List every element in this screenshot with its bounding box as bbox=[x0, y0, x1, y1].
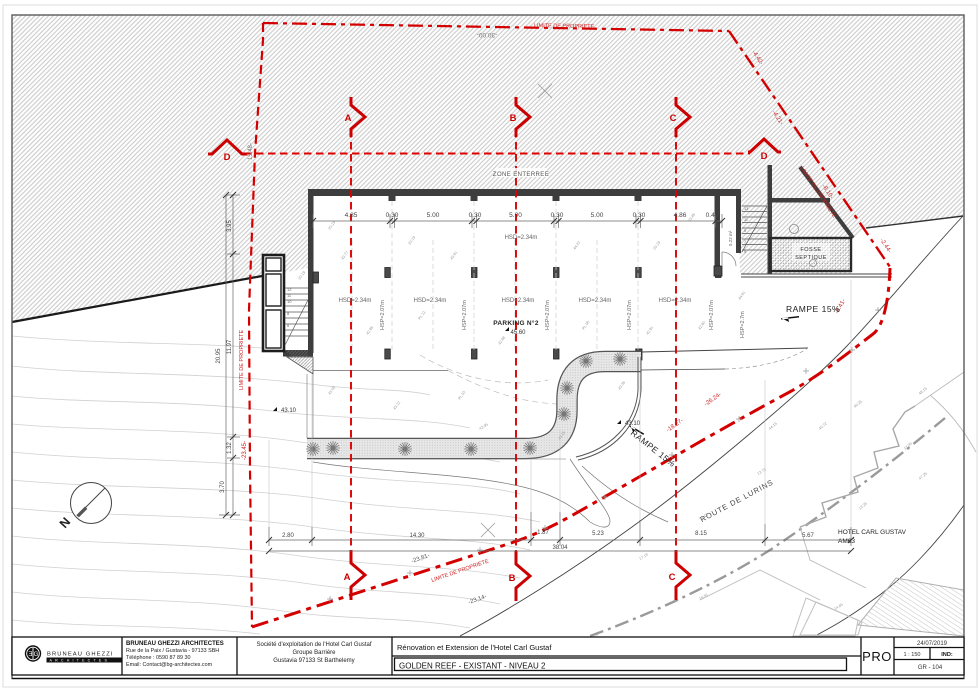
svg-text:HSD=2.34m: HSD=2.34m bbox=[659, 298, 692, 304]
svg-text:5.00: 5.00 bbox=[427, 212, 440, 219]
svg-text:5.00: 5.00 bbox=[591, 212, 604, 219]
svg-text:10: 10 bbox=[287, 299, 292, 304]
svg-text:3.95: 3.95 bbox=[227, 220, 233, 232]
svg-text:D: D bbox=[761, 151, 768, 162]
svg-text:8.15: 8.15 bbox=[695, 531, 707, 537]
svg-text:9: 9 bbox=[744, 229, 746, 233]
svg-text:1.87: 1.87 bbox=[537, 530, 549, 536]
svg-text:Groupe Barrière: Groupe Barrière bbox=[292, 650, 336, 656]
svg-text:PARKING N°2: PARKING N°2 bbox=[493, 319, 539, 327]
svg-text:15.48-: 15.48- bbox=[248, 143, 254, 160]
svg-text:45.60: 45.60 bbox=[510, 330, 526, 336]
svg-text:BRUNEAU GHEZZI: BRUNEAU GHEZZI bbox=[47, 652, 114, 658]
svg-text:RAMPE 15%: RAMPE 15% bbox=[786, 304, 840, 314]
svg-text:5: 5 bbox=[744, 250, 746, 254]
svg-text:B: B bbox=[509, 573, 516, 584]
svg-text:G: G bbox=[34, 652, 39, 658]
svg-text:HSP=2.07m: HSP=2.07m bbox=[709, 300, 715, 330]
svg-text:14.30: 14.30 bbox=[409, 533, 425, 539]
svg-text:AM63: AM63 bbox=[838, 538, 855, 545]
svg-text:43.10: 43.10 bbox=[625, 421, 641, 427]
svg-text:4.86: 4.86 bbox=[674, 212, 687, 219]
svg-text:E: E bbox=[28, 652, 32, 658]
svg-text:A: A bbox=[344, 572, 351, 583]
svg-text:11: 11 bbox=[744, 218, 748, 222]
svg-text:LIMITE DE PROPRIETE: LIMITE DE PROPRIETE bbox=[239, 329, 245, 390]
svg-text:5.23: 5.23 bbox=[592, 531, 604, 537]
svg-text:B: B bbox=[510, 113, 517, 124]
svg-text:D: D bbox=[224, 152, 231, 163]
svg-text:4.85: 4.85 bbox=[345, 212, 358, 219]
svg-text:PRO: PRO bbox=[862, 649, 892, 664]
svg-text:11.97: 11.97 bbox=[227, 339, 233, 354]
svg-text:1 : 150: 1 : 150 bbox=[903, 652, 920, 658]
svg-text:0.30: 0.30 bbox=[551, 212, 564, 219]
svg-text:HOTEL CARL GUSTAV: HOTEL CARL GUSTAV bbox=[838, 529, 907, 536]
svg-text:0.40: 0.40 bbox=[706, 212, 719, 219]
svg-text:2.80: 2.80 bbox=[282, 533, 294, 539]
svg-text:13: 13 bbox=[744, 207, 748, 211]
svg-text:C: C bbox=[669, 572, 676, 583]
svg-text:5.00: 5.00 bbox=[509, 212, 522, 219]
svg-text:24/07/2019: 24/07/2019 bbox=[917, 641, 948, 647]
svg-text:BRUNEAU GHEZZI ARCHITECTES: BRUNEAU GHEZZI ARCHITECTES bbox=[126, 641, 224, 647]
svg-text:Email: Contact@bg-architectes.: Email: Contact@bg-architectes.com bbox=[126, 662, 213, 668]
svg-text:HSD=2.34m: HSD=2.34m bbox=[414, 298, 447, 304]
svg-text:GOLDEN REEF - EXISTANT - NIVEA: GOLDEN REEF - EXISTANT - NIVEAU 2 bbox=[399, 662, 546, 671]
svg-text:GR - 104: GR - 104 bbox=[918, 665, 943, 671]
svg-text:0.30: 0.30 bbox=[633, 212, 646, 219]
svg-text:12: 12 bbox=[287, 287, 292, 292]
svg-text:HSP=2.07m: HSP=2.07m bbox=[380, 300, 386, 330]
svg-text:7: 7 bbox=[744, 240, 746, 244]
svg-text:0.30: 0.30 bbox=[469, 212, 482, 219]
svg-text:3.70: 3.70 bbox=[220, 481, 226, 493]
svg-text:HSP=2.07m: HSP=2.07m bbox=[545, 300, 551, 330]
svg-text:-23.45-: -23.45- bbox=[242, 441, 248, 460]
svg-text:HSD=2.34m: HSD=2.34m bbox=[502, 298, 535, 304]
svg-text:Rénovation et Extension de l'H: Rénovation et Extension de l'Hotel Carl … bbox=[397, 643, 552, 652]
svg-text:-30.00-: -30.00- bbox=[477, 31, 498, 38]
svg-text:HSP=2.07m: HSP=2.07m bbox=[627, 300, 633, 330]
svg-text:ARCHITECTES: ARCHITECTES bbox=[50, 659, 111, 663]
svg-text:20.95: 20.95 bbox=[216, 348, 222, 364]
svg-text:5.22 m²: 5.22 m² bbox=[728, 230, 733, 246]
svg-text:Société d'exploitation de l'Ho: Société d'exploitation de l'Hotel Carl G… bbox=[256, 642, 371, 648]
svg-text:0.30: 0.30 bbox=[386, 212, 399, 219]
svg-text:FOSSE: FOSSE bbox=[800, 247, 821, 253]
svg-text:HSP=2.7m: HSP=2.7m bbox=[740, 311, 746, 338]
svg-text:ZONE ENTERREE: ZONE ENTERREE bbox=[493, 172, 549, 178]
svg-text:HSD=2.34m: HSD=2.34m bbox=[579, 298, 612, 304]
svg-text:5.67: 5.67 bbox=[802, 533, 814, 539]
svg-text:Téléphone : 0590 87 89 30: Téléphone : 0590 87 89 30 bbox=[126, 655, 190, 661]
svg-text:Rue de la Paix / Gustavia - 97: Rue de la Paix / Gustavia - 97133 SBH bbox=[126, 648, 219, 654]
svg-text:HSP=2.07m: HSP=2.07m bbox=[462, 300, 468, 330]
svg-text:A: A bbox=[345, 113, 352, 124]
svg-text:HSD=2.34m: HSD=2.34m bbox=[339, 298, 372, 304]
svg-text:43.10: 43.10 bbox=[281, 408, 297, 414]
svg-text:LIMITE DE PROPRIETE: LIMITE DE PROPRIETE bbox=[534, 23, 595, 30]
svg-text:Gustavia 97133 St Barthelemy: Gustavia 97133 St Barthelemy bbox=[273, 658, 354, 664]
svg-text:38.04: 38.04 bbox=[552, 545, 568, 551]
svg-text:IND:: IND: bbox=[941, 652, 953, 658]
svg-text:C: C bbox=[670, 113, 677, 124]
svg-text:1.32: 1.32 bbox=[227, 442, 233, 454]
svg-text:HSD=2.34m: HSD=2.34m bbox=[505, 235, 538, 241]
